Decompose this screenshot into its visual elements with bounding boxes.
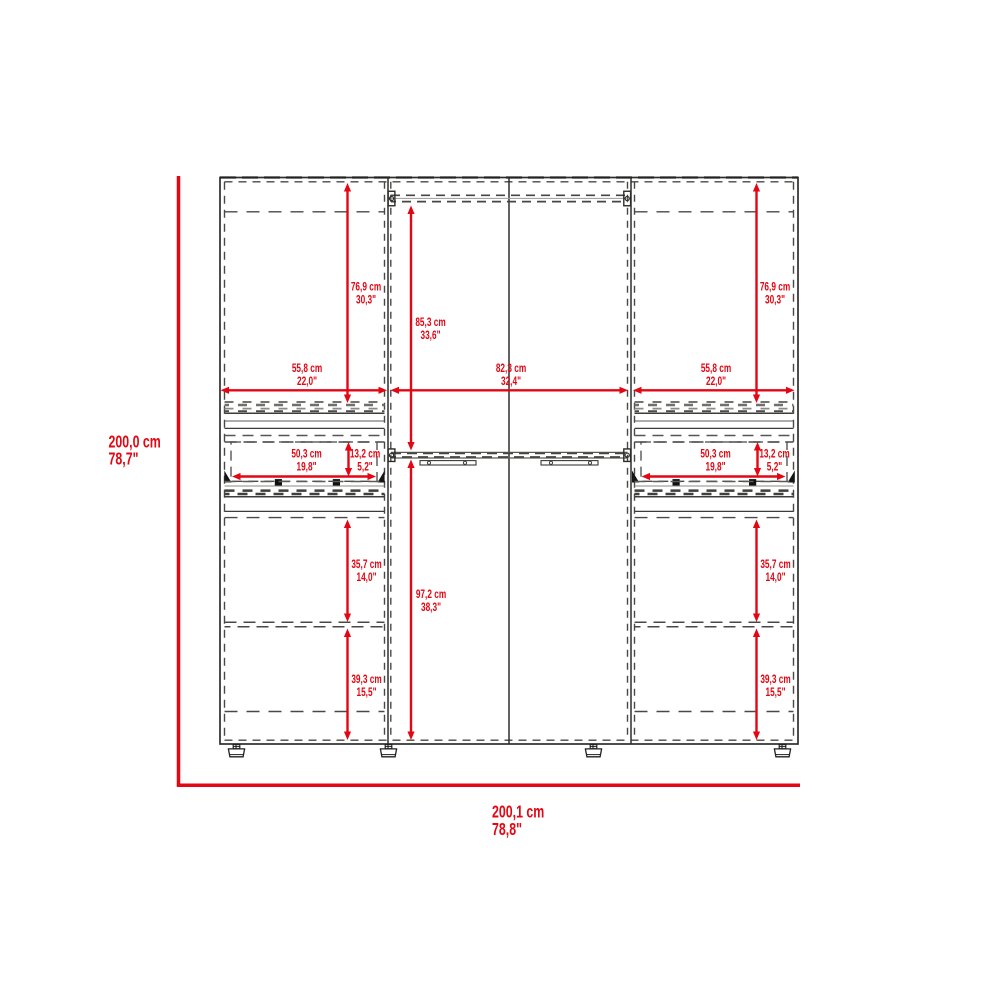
svg-text:15,5": 15,5": [765, 687, 785, 700]
svg-text:35,7 cm: 35,7 cm: [760, 559, 790, 572]
svg-text:55,8 cm: 55,8 cm: [292, 363, 322, 376]
svg-text:33,6": 33,6": [420, 330, 440, 343]
svg-text:19,8": 19,8": [705, 462, 725, 475]
svg-text:5,2": 5,2": [767, 462, 783, 475]
svg-text:22,0": 22,0": [706, 376, 726, 389]
svg-text:13,2 cm: 13,2 cm: [759, 448, 789, 461]
svg-text:39,3 cm: 39,3 cm: [760, 674, 790, 687]
svg-text:85,3 cm: 85,3 cm: [415, 317, 445, 330]
svg-text:22,0": 22,0": [297, 376, 317, 389]
svg-text:5,2": 5,2": [357, 462, 373, 475]
svg-text:39,3 cm: 39,3 cm: [351, 674, 381, 687]
svg-text:50,3 cm: 50,3 cm: [700, 448, 730, 461]
svg-text:35,7 cm: 35,7 cm: [351, 559, 381, 572]
svg-text:50,3 cm: 50,3 cm: [291, 448, 321, 461]
svg-text:78,7": 78,7": [109, 450, 139, 470]
svg-text:76,9 cm: 76,9 cm: [351, 281, 381, 294]
svg-text:55,8 cm: 55,8 cm: [701, 363, 731, 376]
svg-text:76,9 cm: 76,9 cm: [760, 281, 790, 294]
svg-text:30,3": 30,3": [765, 295, 785, 308]
svg-text:13,2 cm: 13,2 cm: [350, 448, 380, 461]
svg-text:78,8": 78,8": [492, 820, 522, 840]
svg-text:38,3": 38,3": [421, 602, 441, 615]
svg-text:19,8": 19,8": [296, 462, 316, 475]
svg-text:97,2 cm: 97,2 cm: [416, 589, 446, 602]
svg-text:30,3": 30,3": [356, 295, 376, 308]
svg-text:14,0": 14,0": [765, 572, 785, 585]
svg-text:14,0": 14,0": [356, 572, 376, 585]
svg-text:15,5": 15,5": [356, 687, 376, 700]
svg-text:32,4": 32,4": [501, 376, 521, 389]
svg-text:82,3 cm: 82,3 cm: [496, 363, 526, 376]
